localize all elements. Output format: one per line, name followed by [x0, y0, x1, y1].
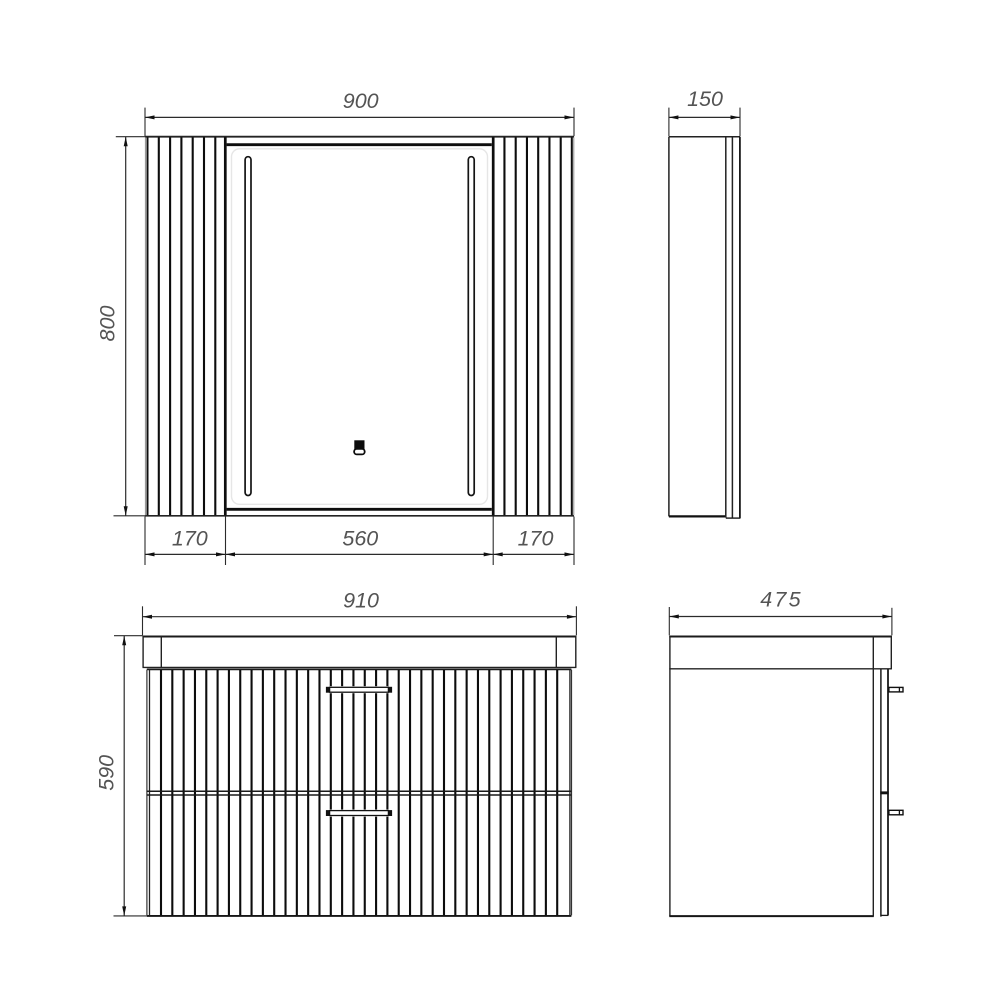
svg-text:170: 170: [518, 527, 554, 551]
svg-text:170: 170: [172, 527, 208, 551]
svg-text:560: 560: [342, 526, 378, 550]
svg-text:910: 910: [343, 588, 379, 612]
svg-text:475: 475: [760, 588, 802, 612]
svg-text:800: 800: [95, 306, 119, 342]
svg-text:150: 150: [687, 87, 723, 111]
svg-text:590: 590: [95, 755, 119, 791]
svg-text:900: 900: [343, 89, 379, 113]
